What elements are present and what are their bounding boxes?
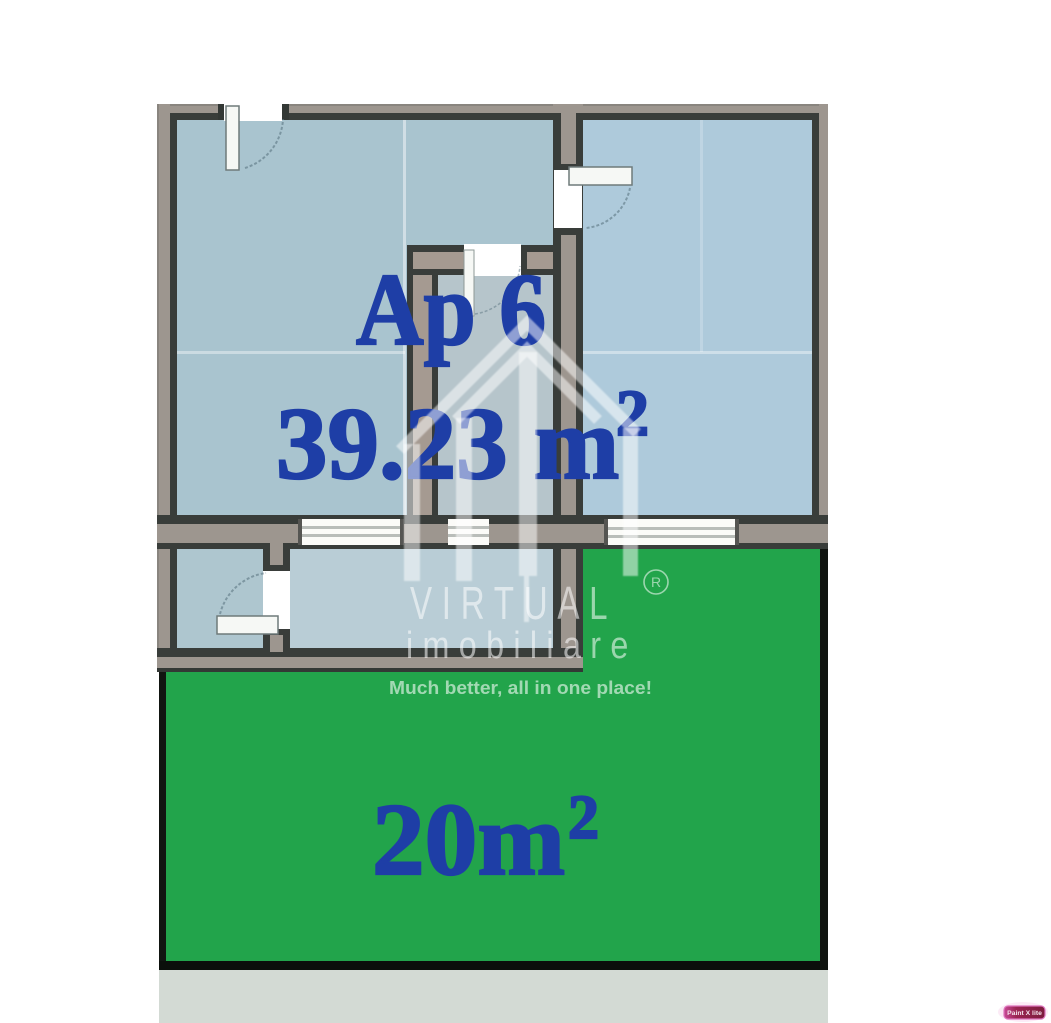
svg-text:imobiliare: imobiliare	[406, 625, 638, 667]
svg-text:Paint X lite: Paint X lite	[1007, 1010, 1042, 1017]
svg-text:VIRTUAL: VIRTUAL	[410, 579, 617, 629]
svg-text:2: 2	[568, 784, 599, 852]
svg-text:Much better, all in one place: Much better, all in one place!	[389, 677, 652, 698]
svg-text:R: R	[651, 574, 661, 590]
svg-text:20m: 20m	[372, 782, 565, 897]
svg-text:Ap 6: Ap 6	[356, 253, 546, 367]
